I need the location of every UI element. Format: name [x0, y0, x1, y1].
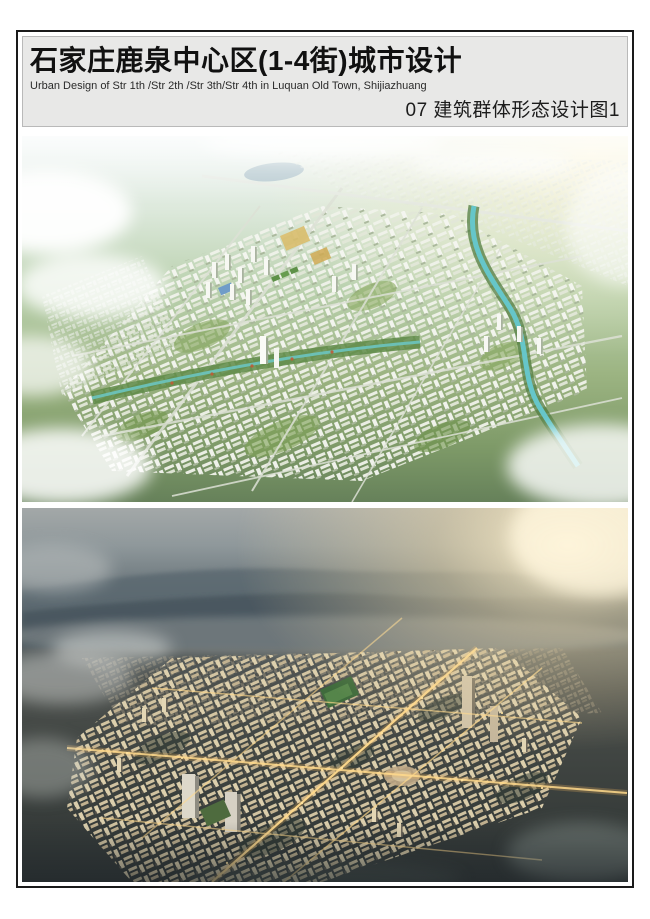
sheet-frame: 石家庄鹿泉中心区(1-4街)城市设计 Urban Design of Str 1…	[16, 30, 634, 888]
title-block: 石家庄鹿泉中心区(1-4街)城市设计 Urban Design of Str 1…	[22, 36, 628, 127]
daytime-aerial-rendering	[22, 136, 628, 502]
section-label: 07 建筑群体形态设计图1	[406, 95, 620, 122]
page-title: 石家庄鹿泉中心区(1-4街)城市设计	[30, 44, 619, 78]
page-subtitle: Urban Design of Str 1th /Str 2th /Str 3t…	[30, 80, 619, 92]
day-top-haze	[22, 136, 628, 206]
dusk-bottom-vignette	[22, 822, 628, 882]
dusk-aerial-rendering	[22, 508, 628, 882]
